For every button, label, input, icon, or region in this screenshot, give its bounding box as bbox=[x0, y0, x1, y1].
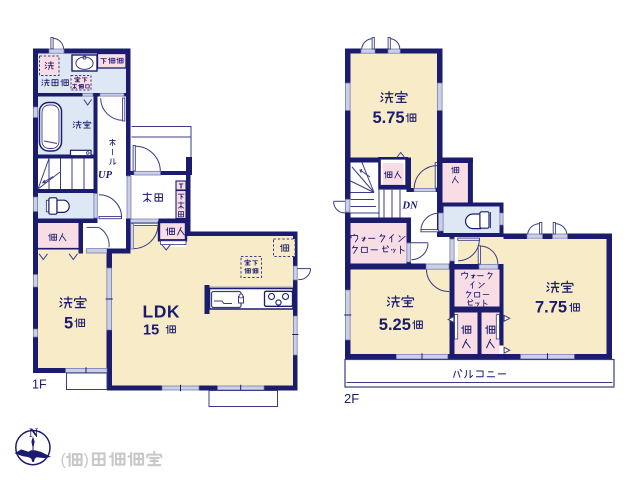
svg-text:LDK: LDK bbox=[143, 302, 180, 322]
svg-text:UP: UP bbox=[98, 170, 113, 181]
svg-text:N: N bbox=[29, 426, 38, 440]
svg-text:5.75: 5.75 bbox=[373, 109, 405, 127]
svg-text:5: 5 bbox=[64, 315, 73, 333]
svg-text:15: 15 bbox=[143, 323, 159, 339]
svg-text:T: T bbox=[179, 181, 184, 190]
svg-text:DN: DN bbox=[402, 200, 419, 211]
svg-text:): ) bbox=[84, 452, 89, 469]
svg-text:1F: 1F bbox=[32, 378, 47, 392]
svg-text:5.25: 5.25 bbox=[379, 316, 411, 334]
svg-text:7.75: 7.75 bbox=[535, 298, 567, 316]
svg-text:2F: 2F bbox=[344, 391, 359, 406]
svg-text:(: ( bbox=[61, 452, 67, 469]
